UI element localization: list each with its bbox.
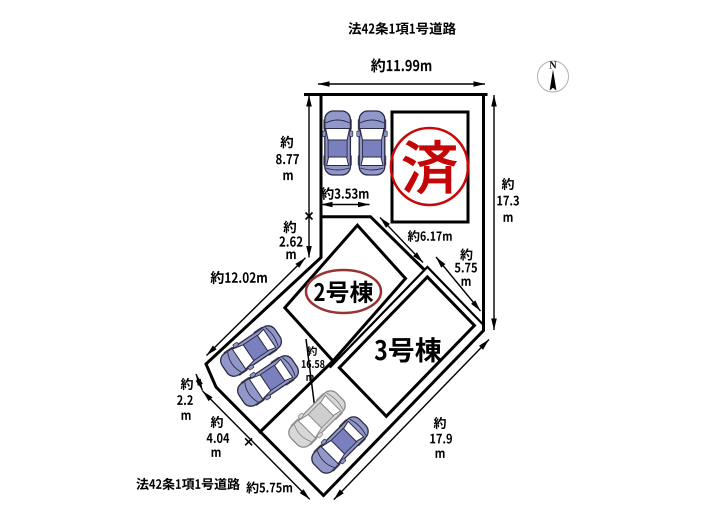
svg-text:N: N: [549, 61, 557, 72]
